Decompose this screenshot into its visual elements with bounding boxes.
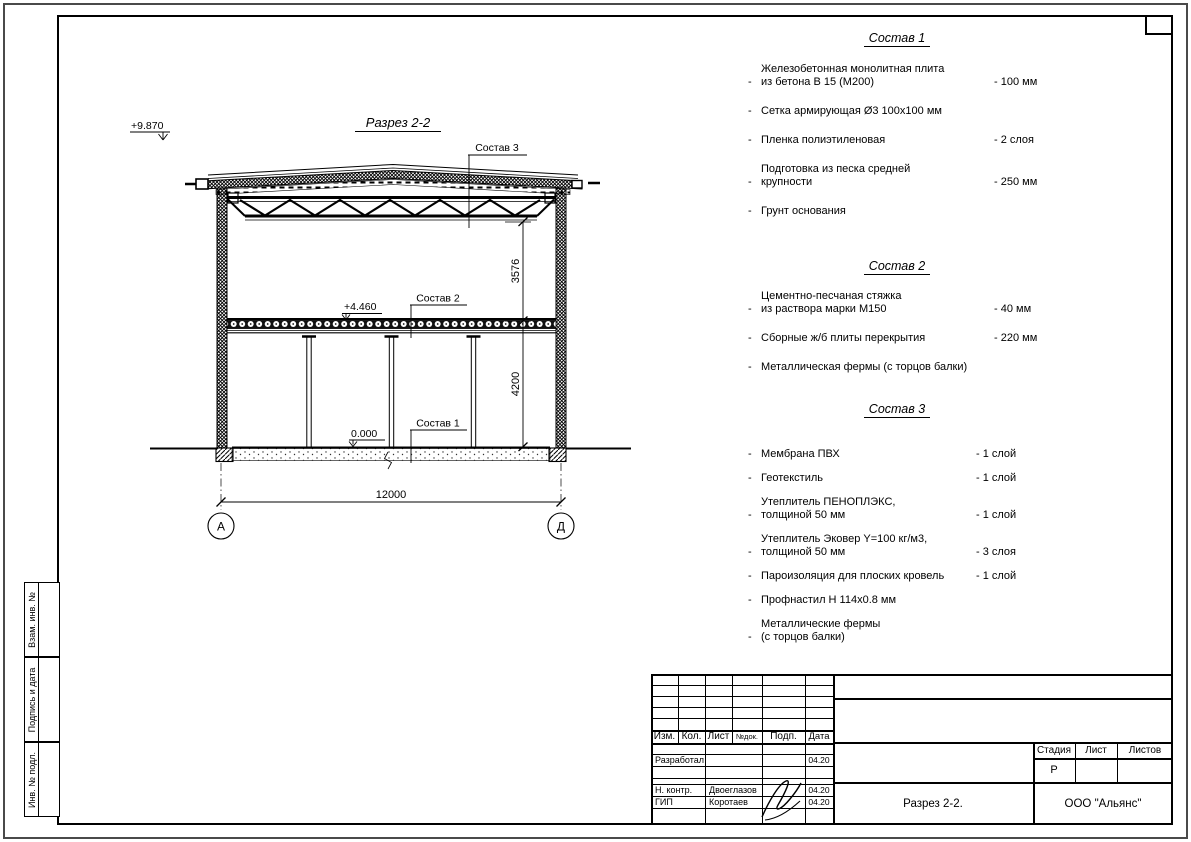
right-column	[556, 188, 566, 448]
item-value: - 1 слой	[976, 472, 1016, 485]
tb-col-ndok: №док.	[732, 730, 762, 743]
tb-line	[651, 674, 1173, 676]
tb-date: 04.20	[805, 796, 833, 808]
tb-stage-value: Р	[1033, 758, 1075, 782]
item-text: Сетка армирующая Ø3 100х100 мм	[761, 105, 994, 118]
tb-sheet-label: Лист	[1075, 742, 1117, 758]
left-column	[217, 188, 227, 448]
stamp-divider	[38, 743, 39, 816]
composition-3-title: Состав 3	[864, 402, 930, 418]
tb-date: 04.20	[805, 754, 833, 766]
hollow-core-slab	[227, 321, 556, 329]
roof	[185, 165, 600, 195]
dim-4200: 4200	[510, 372, 522, 396]
tb-doc-title: Разрез 2-2.	[833, 782, 1033, 825]
tb-line	[833, 698, 1173, 700]
composition-2-title: Состав 2	[864, 259, 930, 275]
bullet: -	[748, 570, 761, 583]
tb-col-podp: Подп.	[762, 730, 805, 743]
item-value: - 1 слой	[976, 509, 1016, 522]
item-value: - 220 мм	[994, 332, 1037, 345]
dim-3576: 3576	[510, 259, 522, 283]
stamp-divider	[38, 583, 39, 656]
stamp-podpis-data: Подпись и дата	[24, 657, 60, 742]
stamp-vzam-inv-label: Взам. инв. №	[27, 592, 37, 648]
tb-stage-label: Стадия	[1033, 742, 1075, 758]
bullet: -	[748, 631, 761, 644]
list-item: -Мембрана ПВХ- 1 слой	[748, 448, 1180, 461]
vertical-dimension: 3576 4200	[505, 218, 531, 452]
tb-name-dvoeglazov: Двоеглазов	[706, 784, 762, 796]
item-text: Пароизоляция для плоских кровель	[761, 570, 976, 583]
tb-company: ООО "Альянс"	[1033, 782, 1173, 825]
list-item: -Геотекстиль- 1 слой	[748, 472, 1180, 485]
item-text: Мембрана ПВХ	[761, 448, 976, 461]
leader-sostav2: Состав 2	[416, 293, 460, 305]
item-value: - 1 слой	[976, 448, 1016, 461]
stamp-inv-podl: Инв. № подл.	[24, 742, 60, 817]
elev-floor: +4.460	[344, 301, 377, 313]
leader-sostav3: Состав 3	[475, 142, 519, 154]
tb-col-izm: Изм.	[651, 730, 678, 743]
tb-role-gip: ГИП	[652, 796, 705, 808]
item-value: - 1 слой	[976, 570, 1016, 583]
stamp-vzam-inv: Взам. инв. №	[24, 582, 60, 657]
axis-letter-left: А	[217, 520, 225, 534]
item-text: Металлические фермы (с торцов балки)	[761, 618, 976, 644]
tb-date: 04.20	[805, 784, 833, 796]
bullet: -	[748, 546, 761, 559]
item-text: Профнастил Н 114х0.8 мм	[761, 594, 976, 607]
section-drawing: 3576 4200 12000 А Д +9.870 +4.460 0.000	[110, 100, 670, 570]
item-text: Пленка полиэтиленовая	[761, 134, 994, 147]
list-item: -Цементно-песчаная стяжка из раствора ма…	[748, 290, 1180, 316]
roof-truss	[227, 198, 556, 221]
elevation-marks: +9.870 +4.460 0.000	[130, 120, 385, 447]
bullet: -	[748, 105, 761, 118]
list-item: -Подготовка из песка средней крупности- …	[748, 163, 1180, 189]
item-text: Утеплитель Эковер Y=100 кг/м3, толщиной …	[761, 533, 976, 559]
signature	[757, 777, 805, 821]
bullet: -	[748, 205, 761, 218]
item-value: - 250 мм	[994, 176, 1037, 189]
list-item: -Сетка армирующая Ø3 100х100 мм	[748, 105, 1180, 118]
list-item: -Профнастил Н 114х0.8 мм	[748, 594, 1180, 607]
tb-sheets-label: Листов	[1117, 742, 1173, 758]
stamp-inv-podl-label: Инв. № подл.	[27, 751, 37, 807]
drawing-sheet: Взам. инв. № Подпись и дата Инв. № подл.…	[0, 0, 1191, 842]
bullet: -	[748, 509, 761, 522]
span-dimension: 12000 А Д	[208, 463, 574, 539]
list-item: -Металлические фермы (с торцов балки)	[748, 618, 1180, 644]
composition-1: Состав 1 -Железобетонная монолитная плит…	[748, 31, 1180, 234]
list-item: -Утеплитель ПЕНОПЛЭКС, толщиной 50 мм- 1…	[748, 496, 1180, 522]
item-text: Металлическая фермы (с торцов балки)	[761, 361, 994, 374]
tb-role-nkontr: Н. контр.	[652, 784, 705, 796]
dim-12000: 12000	[376, 489, 407, 501]
ground-slab	[150, 448, 631, 470]
bullet: -	[748, 134, 761, 147]
bullet: -	[748, 594, 761, 607]
stamp-divider	[38, 658, 39, 741]
bullet: -	[748, 448, 761, 461]
list-item: -Сборные ж/б плиты перекрытия- 220 мм	[748, 332, 1180, 345]
list-item: -Грунт основания	[748, 205, 1180, 218]
list-item: -Утеплитель Эковер Y=100 кг/м3, толщиной…	[748, 533, 1180, 559]
axis-letter-right: Д	[557, 520, 565, 534]
list-item: -Пароизоляция для плоских кровель- 1 сло…	[748, 570, 1180, 583]
bullet: -	[748, 303, 761, 316]
elev-zero: 0.000	[351, 428, 377, 440]
left-footing	[216, 448, 233, 462]
tb-col-data: Дата	[805, 730, 833, 743]
list-item: -Железобетонная монолитная плита из бето…	[748, 63, 1180, 89]
elev-roof: +9.870	[131, 120, 164, 132]
composition-2: Состав 2 -Цементно-песчаная стяжка из ра…	[748, 259, 1180, 390]
bullet: -	[748, 76, 761, 89]
item-text: Железобетонная монолитная плита из бетон…	[761, 63, 994, 89]
tb-role-razrabotal: Разработал	[652, 754, 705, 766]
composition-3: Состав 3 -Мембрана ПВХ- 1 слой -Геотекст…	[748, 402, 1180, 655]
tb-col-kol: Кол.	[678, 730, 705, 743]
item-value: - 40 мм	[994, 303, 1031, 316]
item-text: Грунт основания	[761, 205, 994, 218]
item-text: Подготовка из песка средней крупности	[761, 163, 994, 189]
bullet: -	[748, 361, 761, 374]
item-text: Утеплитель ПЕНОПЛЭКС, толщиной 50 мм	[761, 496, 976, 522]
item-text: Цементно-песчаная стяжка из раствора мар…	[761, 290, 994, 316]
bullet: -	[748, 176, 761, 189]
composition-1-title: Состав 1	[864, 31, 930, 47]
item-text: Геотекстиль	[761, 472, 976, 485]
right-footing	[549, 448, 566, 462]
leader-sostav1: Состав 1	[416, 418, 460, 430]
item-value: - 2 слоя	[994, 134, 1034, 147]
bullet: -	[748, 332, 761, 345]
stamp-podpis-data-label: Подпись и дата	[27, 667, 37, 732]
item-value: - 3 слоя	[976, 546, 1016, 559]
tb-name-korotaev: Коротаев	[706, 796, 762, 808]
bullet: -	[748, 472, 761, 485]
floor-on-ground	[232, 449, 550, 461]
item-text: Сборные ж/б плиты перекрытия	[761, 332, 994, 345]
list-item: -Металлическая фермы (с торцов балки)	[748, 361, 1180, 374]
tb-col-list: Лист	[705, 730, 732, 743]
item-value: - 100 мм	[994, 76, 1037, 89]
list-item: -Пленка полиэтиленовая- 2 слоя	[748, 134, 1180, 147]
